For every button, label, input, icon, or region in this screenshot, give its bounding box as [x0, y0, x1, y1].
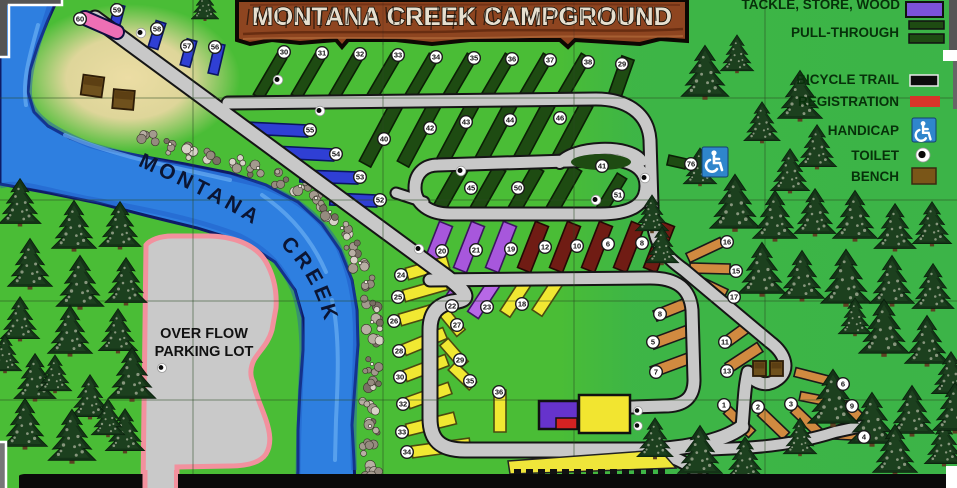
svg-text:36: 36	[508, 55, 516, 64]
svg-text:21: 21	[472, 246, 480, 255]
svg-text:29: 29	[456, 356, 464, 365]
svg-text:23: 23	[483, 303, 491, 312]
svg-text:58: 58	[153, 25, 161, 34]
svg-text:43: 43	[462, 118, 470, 127]
svg-text:56: 56	[211, 43, 219, 52]
svg-text:PULL-THROUGH: PULL-THROUGH	[791, 25, 899, 40]
svg-text:7: 7	[654, 368, 658, 377]
svg-text:34: 34	[432, 53, 441, 62]
svg-text:BENCH: BENCH	[851, 169, 899, 184]
svg-text:53: 53	[356, 173, 364, 182]
svg-text:3: 3	[789, 400, 793, 409]
svg-text:38: 38	[584, 58, 592, 67]
svg-text:6: 6	[606, 240, 610, 249]
svg-text:12: 12	[541, 243, 549, 252]
svg-text:35: 35	[470, 54, 478, 63]
svg-text:24: 24	[397, 271, 406, 280]
svg-text:54: 54	[332, 150, 341, 159]
svg-text:20: 20	[438, 247, 446, 256]
svg-text:TOILET: TOILET	[851, 148, 900, 163]
svg-text:25: 25	[394, 293, 402, 302]
svg-text:46: 46	[556, 114, 564, 123]
svg-text:29: 29	[618, 60, 626, 69]
svg-text:REGISTRATION: REGISTRATION	[798, 94, 899, 109]
svg-text:40: 40	[380, 135, 388, 144]
svg-text:57: 57	[183, 42, 191, 51]
svg-text:52: 52	[376, 196, 384, 205]
svg-text:55: 55	[306, 126, 314, 135]
svg-text:32: 32	[356, 50, 364, 59]
svg-text:1: 1	[722, 401, 726, 410]
svg-text:30: 30	[280, 48, 288, 57]
svg-text:41: 41	[598, 162, 606, 171]
svg-text:51: 51	[614, 191, 622, 200]
svg-text:19: 19	[507, 245, 515, 254]
svg-text:36: 36	[495, 388, 503, 397]
svg-text:35: 35	[466, 377, 474, 386]
svg-text:32: 32	[399, 400, 407, 409]
svg-text:11: 11	[721, 338, 729, 347]
svg-text:60: 60	[76, 15, 84, 24]
svg-text:45: 45	[467, 184, 475, 193]
svg-text:13: 13	[723, 367, 731, 376]
svg-text:9: 9	[850, 402, 854, 411]
svg-text:37: 37	[546, 56, 554, 65]
svg-text:28: 28	[395, 347, 403, 356]
svg-text:31: 31	[318, 49, 326, 58]
svg-text:6: 6	[841, 380, 845, 389]
svg-text:BICYCLE TRAIL: BICYCLE TRAIL	[796, 72, 899, 87]
svg-text:15: 15	[732, 267, 740, 276]
svg-text:50: 50	[514, 184, 522, 193]
svg-text:33: 33	[394, 51, 402, 60]
svg-text:8: 8	[658, 310, 662, 319]
svg-text:42: 42	[426, 124, 434, 133]
svg-text:30: 30	[396, 373, 404, 382]
svg-text:8: 8	[640, 239, 644, 248]
svg-text:22: 22	[448, 302, 456, 311]
svg-text:PARKING LOT: PARKING LOT	[155, 344, 254, 360]
svg-text:34: 34	[403, 448, 412, 457]
svg-text:16: 16	[723, 238, 731, 247]
svg-text:5: 5	[651, 338, 655, 347]
svg-text:26: 26	[390, 317, 398, 326]
svg-text:27: 27	[453, 321, 461, 330]
svg-text:44: 44	[506, 116, 515, 125]
svg-text:HANDICAP: HANDICAP	[828, 123, 899, 138]
svg-text:76: 76	[687, 160, 695, 169]
svg-text:OVER FLOW: OVER FLOW	[160, 326, 248, 342]
svg-text:2: 2	[756, 403, 760, 412]
svg-text:17: 17	[730, 293, 738, 302]
svg-text:MONTANA CREEK CAMPGROUND: MONTANA CREEK CAMPGROUND	[252, 3, 672, 31]
svg-text:59: 59	[113, 6, 121, 15]
svg-text:TACKLE, STORE, WOOD: TACKLE, STORE, WOOD	[742, 0, 901, 12]
svg-text:10: 10	[573, 242, 581, 251]
svg-text:33: 33	[398, 428, 406, 437]
svg-text:18: 18	[518, 300, 526, 309]
